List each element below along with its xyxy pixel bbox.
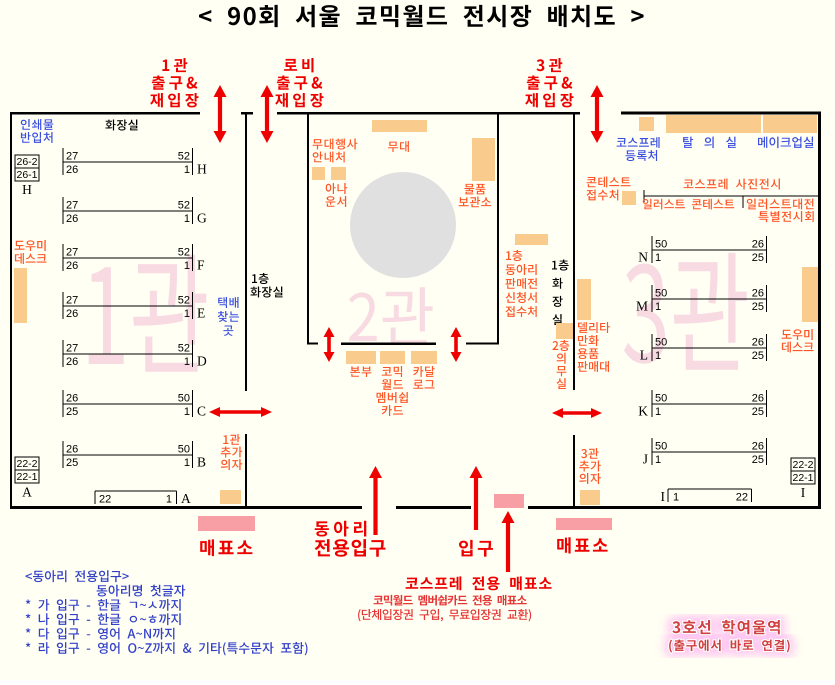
svg-text:27: 27 [66, 247, 78, 259]
svg-text:26-1: 26-1 [16, 169, 37, 181]
svg-text:50: 50 [655, 288, 667, 300]
svg-text:L: L [640, 348, 648, 363]
svg-text:26: 26 [752, 337, 764, 349]
svg-text:26: 26 [66, 213, 78, 225]
svg-text:26: 26 [752, 441, 764, 453]
svg-text:52: 52 [178, 295, 190, 307]
svg-text:I: I [661, 489, 666, 504]
svg-text:52: 52 [178, 200, 190, 212]
svg-text:27: 27 [66, 200, 78, 212]
svg-text:26-2: 26-2 [16, 156, 37, 168]
svg-text:C: C [197, 404, 206, 419]
svg-text:50: 50 [655, 337, 667, 349]
svg-text:22-1: 22-1 [792, 472, 813, 484]
svg-text:H: H [197, 162, 207, 177]
svg-text:1: 1 [184, 308, 190, 320]
svg-text:26: 26 [752, 393, 764, 405]
svg-text:50: 50 [178, 444, 190, 456]
svg-text:25: 25 [752, 454, 764, 466]
svg-text:1: 1 [184, 406, 190, 418]
svg-text:E: E [197, 306, 205, 321]
svg-text:50: 50 [655, 441, 667, 453]
svg-text:22-1: 22-1 [16, 471, 37, 483]
svg-text:50: 50 [178, 393, 190, 405]
svg-text:25: 25 [66, 406, 78, 418]
svg-text:26: 26 [66, 393, 78, 405]
svg-text:52: 52 [178, 247, 190, 259]
svg-text:26: 26 [752, 288, 764, 300]
svg-text:22-2: 22-2 [792, 459, 813, 471]
svg-text:K: K [638, 404, 648, 419]
svg-text:50: 50 [655, 393, 667, 405]
svg-text:1: 1 [184, 457, 190, 469]
svg-text:26: 26 [66, 260, 78, 272]
svg-text:22-2: 22-2 [16, 458, 37, 470]
svg-text:B: B [197, 455, 206, 470]
svg-text:22: 22 [99, 494, 111, 506]
svg-text:25: 25 [752, 301, 764, 313]
svg-text:26: 26 [66, 444, 78, 456]
svg-text:N: N [638, 250, 648, 265]
svg-text:1: 1 [184, 356, 190, 368]
svg-text:H: H [22, 182, 32, 197]
svg-text:F: F [197, 258, 205, 273]
svg-text:1: 1 [655, 350, 661, 362]
svg-text:1: 1 [184, 213, 190, 225]
svg-text:25: 25 [66, 457, 78, 469]
svg-text:52: 52 [178, 151, 190, 163]
svg-text:J: J [643, 452, 648, 467]
svg-text:A: A [22, 485, 32, 500]
svg-text:26: 26 [752, 239, 764, 251]
svg-text:M: M [636, 299, 648, 314]
svg-text:27: 27 [66, 151, 78, 163]
svg-text:1: 1 [655, 252, 661, 264]
svg-text:1: 1 [166, 494, 172, 506]
svg-text:1: 1 [184, 164, 190, 176]
svg-text:1: 1 [655, 301, 661, 313]
svg-text:26: 26 [66, 356, 78, 368]
svg-text:G: G [197, 211, 207, 226]
svg-text:D: D [197, 354, 207, 369]
svg-text:27: 27 [66, 295, 78, 307]
svg-text:25: 25 [752, 350, 764, 362]
svg-text:1: 1 [655, 406, 661, 418]
svg-text:50: 50 [655, 239, 667, 251]
svg-text:27: 27 [66, 343, 78, 355]
svg-text:25: 25 [752, 406, 764, 418]
svg-text:22: 22 [736, 492, 748, 504]
svg-text:26: 26 [66, 164, 78, 176]
svg-text:A: A [181, 491, 191, 506]
svg-text:52: 52 [178, 343, 190, 355]
svg-text:1: 1 [184, 260, 190, 272]
svg-text:1: 1 [655, 454, 661, 466]
svg-text:I: I [801, 485, 806, 500]
svg-text:26: 26 [66, 308, 78, 320]
svg-text:25: 25 [752, 252, 764, 264]
svg-text:1: 1 [673, 492, 679, 504]
